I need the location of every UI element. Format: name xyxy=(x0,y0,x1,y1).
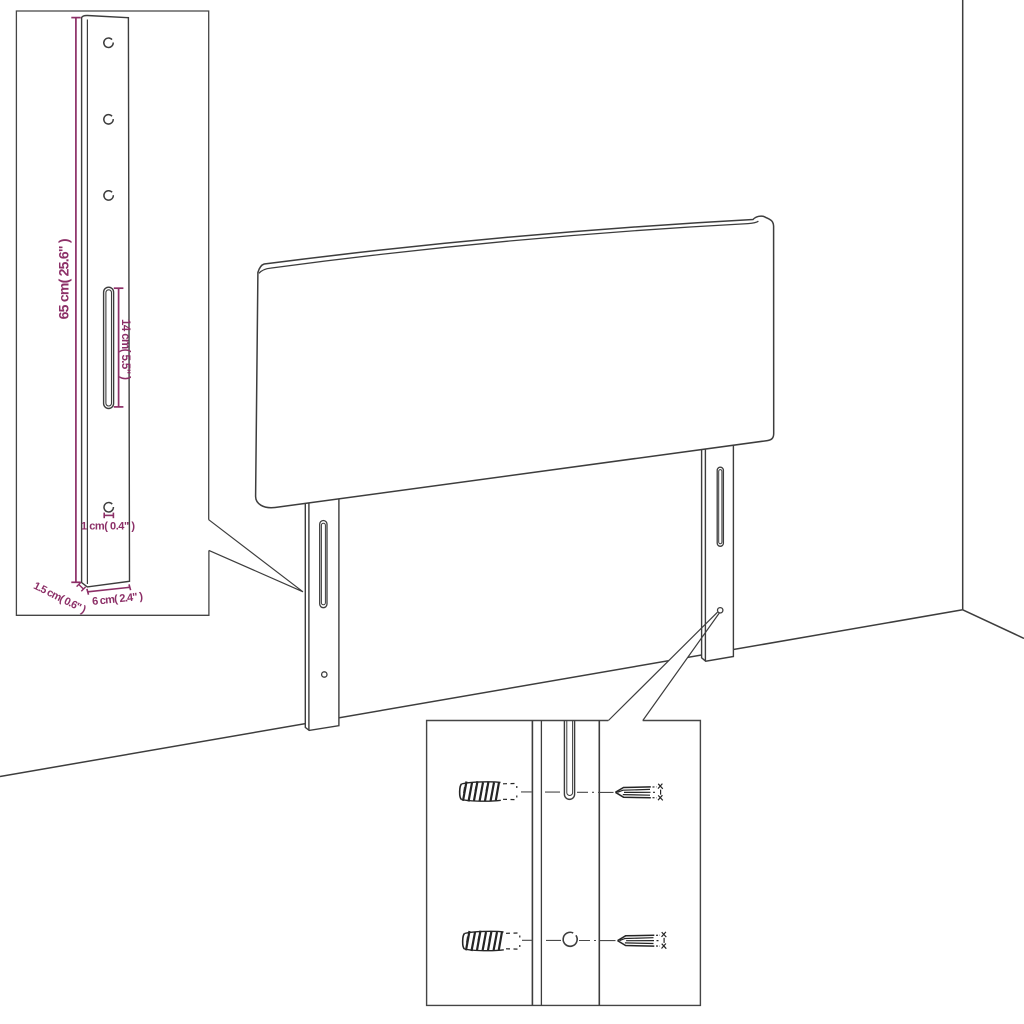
svg-text:1 cm( 0.4" ): 1 cm( 0.4" ) xyxy=(81,521,135,533)
svg-text:65 cm( 25.6" ): 65 cm( 25.6" ) xyxy=(55,238,71,319)
svg-text:14 cm( 5.5" ): 14 cm( 5.5" ) xyxy=(119,319,131,380)
